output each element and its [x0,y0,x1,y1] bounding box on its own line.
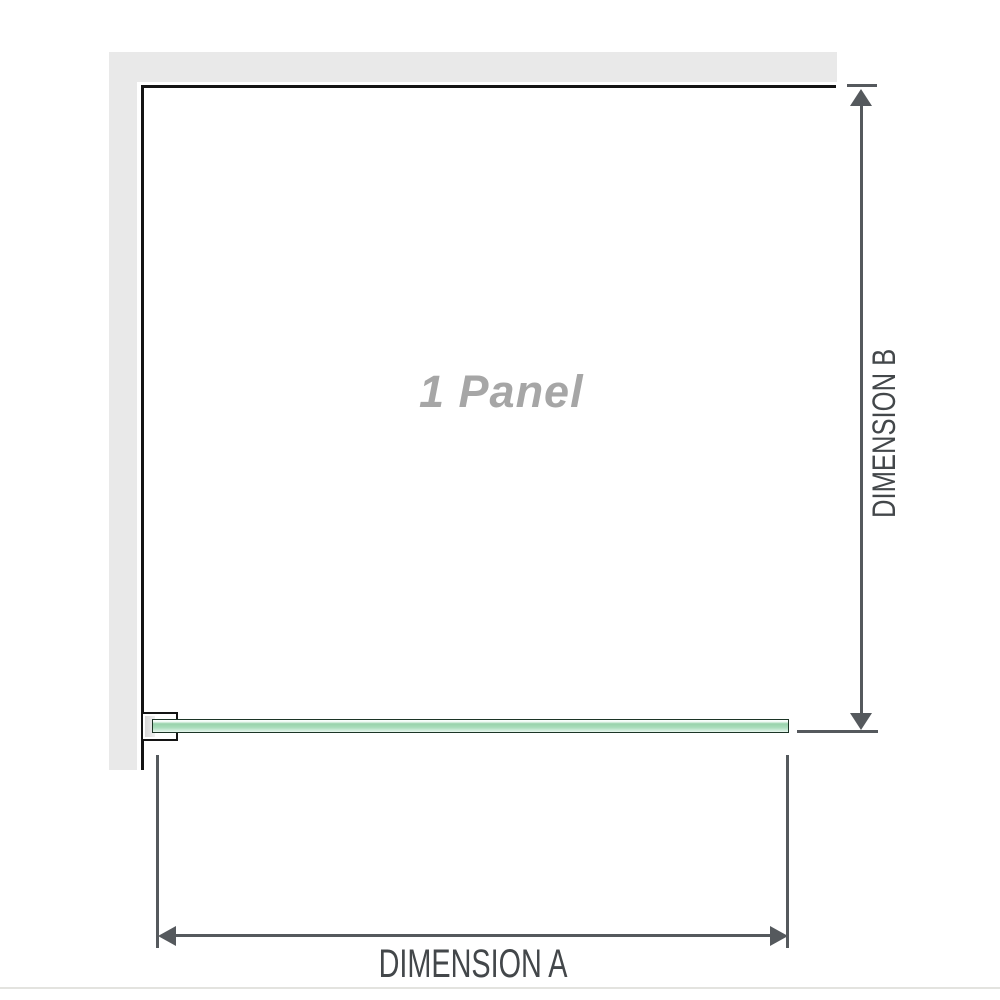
arrow-down-icon [850,713,872,730]
dimension-a-extension-right [786,755,789,948]
wall-left-bar [109,52,137,770]
dimension-a-line [173,934,773,937]
dimension-a-extension-left [156,755,159,948]
panel-front-left-edge-upper [141,85,144,712]
arrow-up-icon [850,89,872,106]
dimension-b-tick-top [847,84,877,87]
bottom-divider [0,987,1000,989]
panel-count-label: 1 Panel [419,369,584,414]
dimension-b-tick-bottom [797,730,878,733]
diagram-canvas: 1 Panel DIMENSION B DIMENSION A [0,0,1000,1000]
glass-panel-bar [152,719,789,733]
panel-front-left-edge-lower [141,741,144,770]
arrow-left-icon [158,926,176,946]
dimension-b-line [860,97,863,716]
arrow-right-icon [770,926,788,946]
dimension-b-label: DIMENSION B [866,349,902,518]
wall-top-bar [109,52,837,82]
panel-front-top-edge [141,85,836,88]
dimension-a-label: DIMENSION A [245,944,700,984]
